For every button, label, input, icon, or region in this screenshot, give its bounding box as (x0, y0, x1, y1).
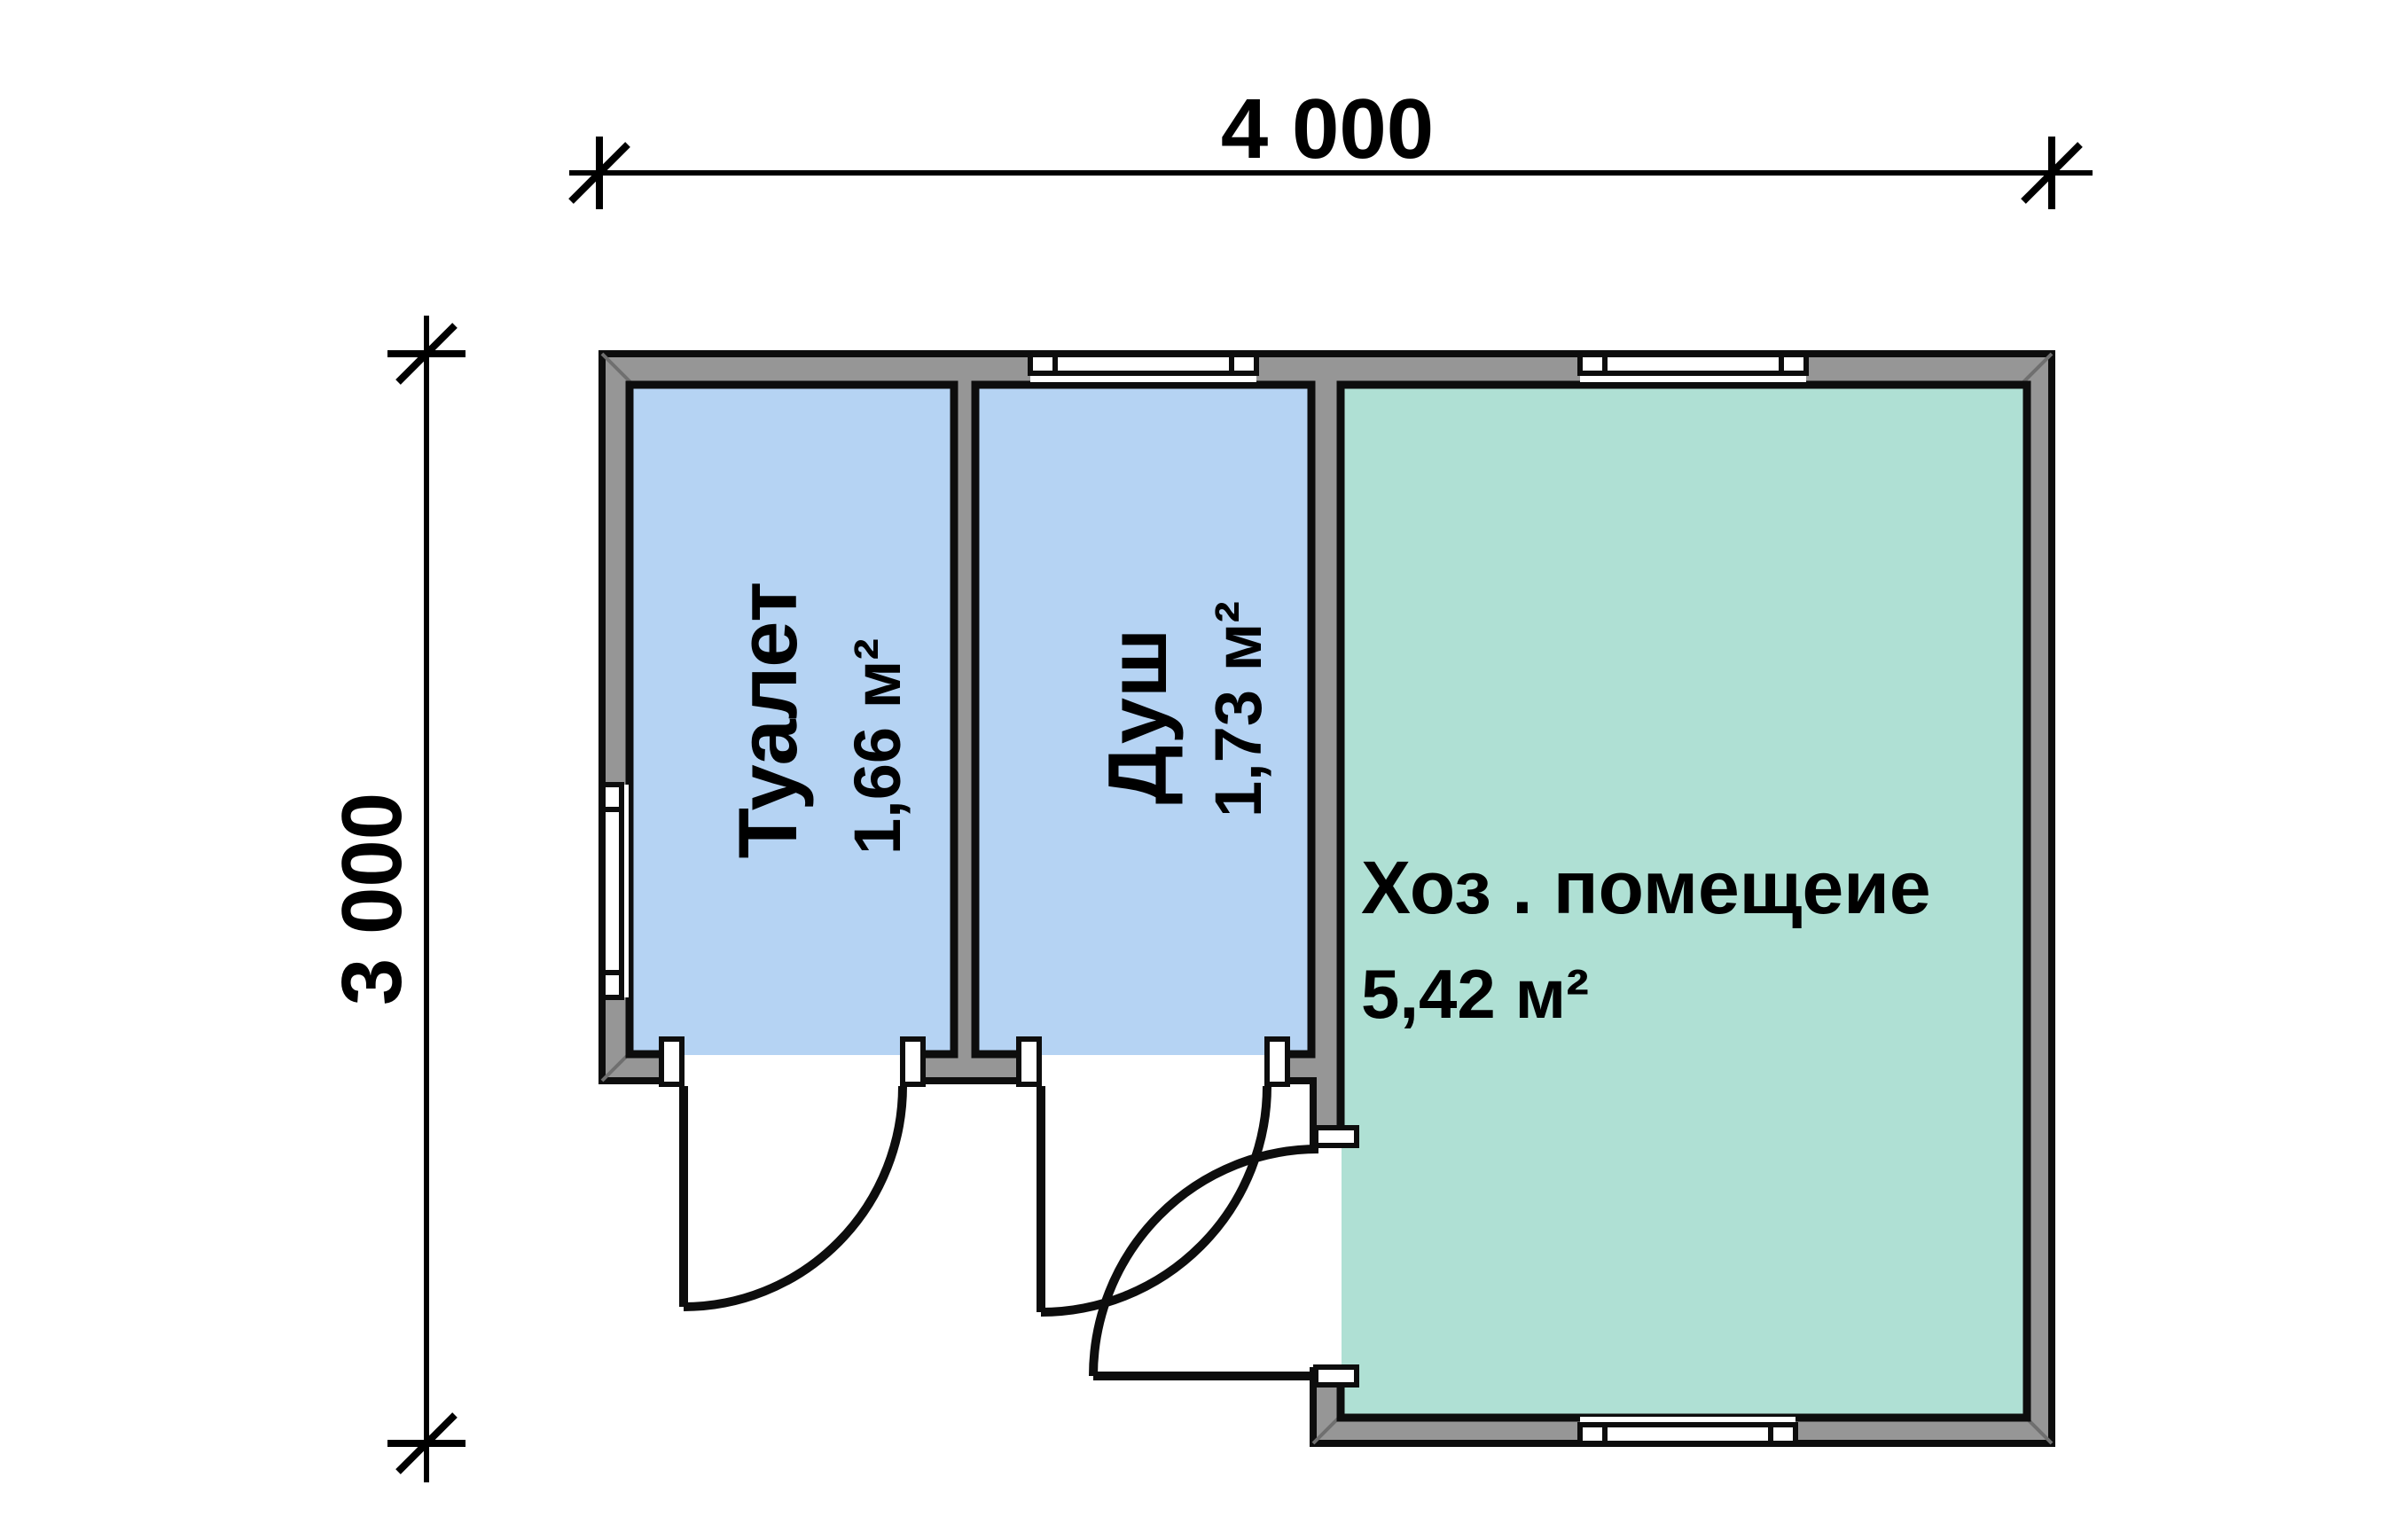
utility-door-jamb-top (1316, 1128, 1357, 1145)
window-top-utility (1580, 355, 1806, 382)
utility-room-label: Хоз . помещеие (1361, 846, 1931, 929)
utility-door-jamb-bottom (1316, 1367, 1357, 1385)
window-frame (603, 785, 622, 997)
shower-door-jamb-right (1267, 1039, 1287, 1084)
window-sill-gap (1580, 376, 1806, 382)
window-sill-gap (1580, 1417, 1795, 1423)
window-top-shower (1030, 355, 1256, 382)
window-frame (1030, 355, 1256, 373)
shower-door-opening-floor-edge (1041, 1048, 1265, 1055)
window-bottom-utility (1580, 1417, 1795, 1443)
shower-area-label: 1,73 м² (1201, 601, 1275, 817)
utility-door-opening (1305, 1145, 1346, 1367)
window-left-toilet (603, 785, 629, 997)
dimension-left-label: 3 000 (325, 793, 419, 1005)
toilet-door-jamb-right (903, 1039, 923, 1084)
toilet-door-jamb-left (661, 1039, 682, 1084)
window-frame (1580, 1425, 1795, 1443)
utility-area-label: 5,42 м² (1361, 955, 1589, 1033)
dimension-top-label: 4 000 (1221, 82, 1434, 176)
shower-room-label: Душ (1091, 629, 1184, 805)
toilet-room-label: Туалет (721, 582, 814, 859)
window-frame (1580, 355, 1806, 373)
floor-plan-page: Туалет 1,66 м² Душ 1,73 м² Хоз . помещеи… (0, 0, 2394, 1540)
window-sill-gap (1030, 376, 1256, 382)
toilet-area-label: 1,66 м² (841, 638, 914, 855)
shower-door-jamb-left (1019, 1039, 1039, 1084)
floor-plan-svg: Туалет 1,66 м² Душ 1,73 м² Хоз . помещеи… (0, 0, 2394, 1540)
utility-door-opening-floor-edge (1342, 1145, 1350, 1367)
toilet-door-opening-floor-edge (684, 1048, 901, 1055)
